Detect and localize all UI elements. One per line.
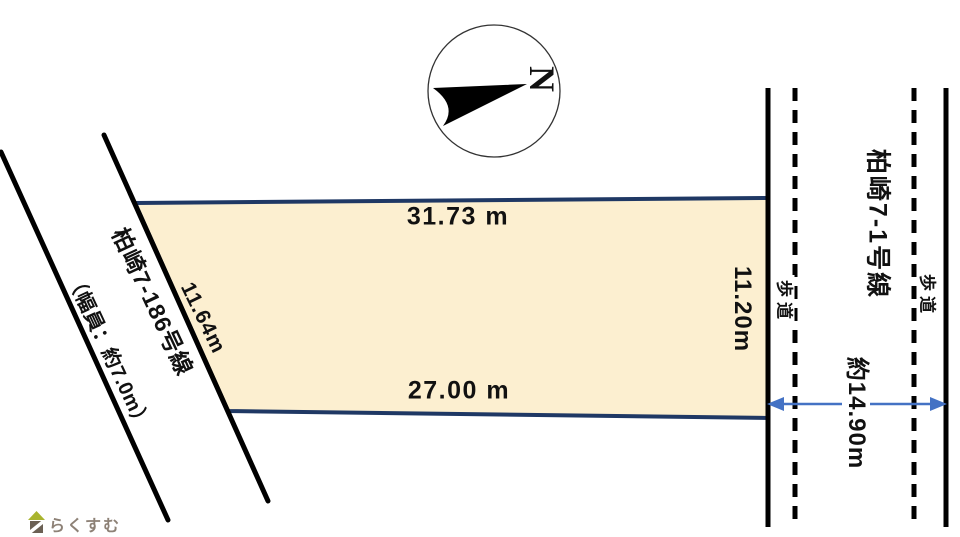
sidewalk-label-left: 歩道 bbox=[774, 275, 795, 329]
land-plot-diagram: 31.73 m 27.00 m 11.64m 11.20m 柏崎7-186号線 … bbox=[0, 0, 960, 537]
house-icon bbox=[28, 511, 45, 535]
sidewalk-label-right: 歩道 bbox=[917, 269, 938, 323]
rakusumu-logo: らくすむ bbox=[28, 511, 121, 535]
compass-north-label: N bbox=[524, 66, 560, 92]
dimension-bottom: 27.00 m bbox=[408, 379, 510, 404]
logo-text: らくすむ bbox=[49, 519, 121, 535]
dimension-right: 11.20m bbox=[730, 266, 754, 352]
house-roof-shape bbox=[28, 511, 45, 520]
dimension-top: 31.73 m bbox=[407, 205, 509, 230]
right-road-width-label: 約14.90m bbox=[842, 352, 870, 474]
right-road-name: 柏崎7-1号線 bbox=[865, 149, 890, 299]
